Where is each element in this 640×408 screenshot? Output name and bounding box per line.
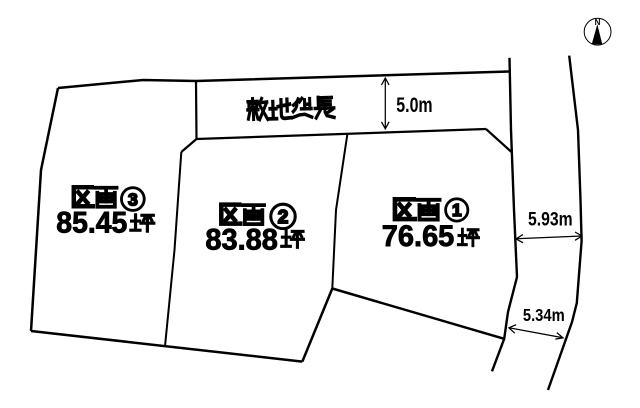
svg-text:5.0m: 5.0m [396, 93, 432, 117]
svg-text:85.45: 85.45 [56, 207, 127, 240]
svg-text:76.65: 76.65 [382, 220, 455, 253]
svg-text:83.88: 83.88 [205, 223, 278, 256]
svg-text:5.34m: 5.34m [523, 305, 565, 325]
svg-text:5.93m: 5.93m [528, 209, 573, 231]
